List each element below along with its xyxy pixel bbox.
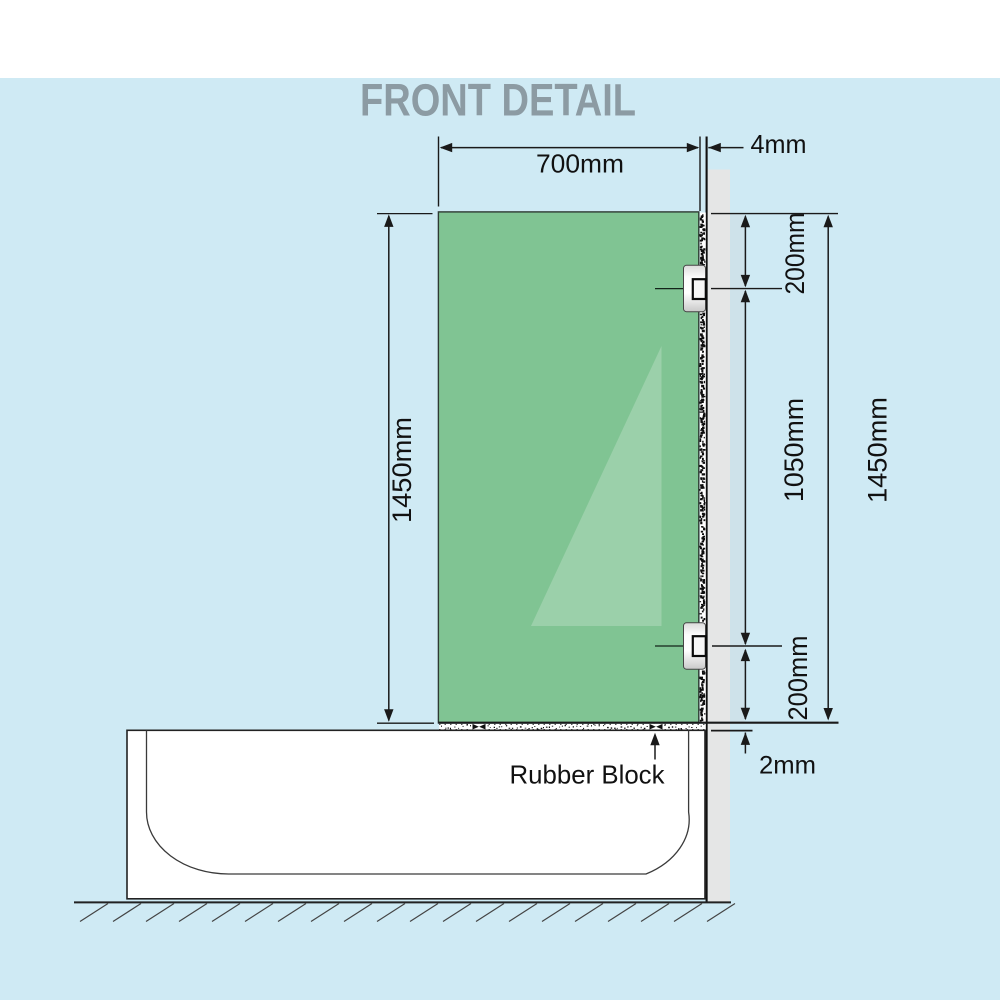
svg-text:Rubber Block: Rubber Block <box>510 760 666 790</box>
svg-text:FRONT DETAIL: FRONT DETAIL <box>360 74 636 125</box>
svg-text:1450mm: 1450mm <box>387 417 417 523</box>
svg-text:200mm: 200mm <box>780 213 810 295</box>
svg-text:1050mm: 1050mm <box>779 398 809 502</box>
svg-text:200mm: 200mm <box>783 636 813 721</box>
svg-text:700mm: 700mm <box>536 149 624 179</box>
svg-text:1450mm: 1450mm <box>863 397 893 503</box>
svg-text:2mm: 2mm <box>759 752 816 780</box>
svg-text:4mm: 4mm <box>751 129 807 159</box>
